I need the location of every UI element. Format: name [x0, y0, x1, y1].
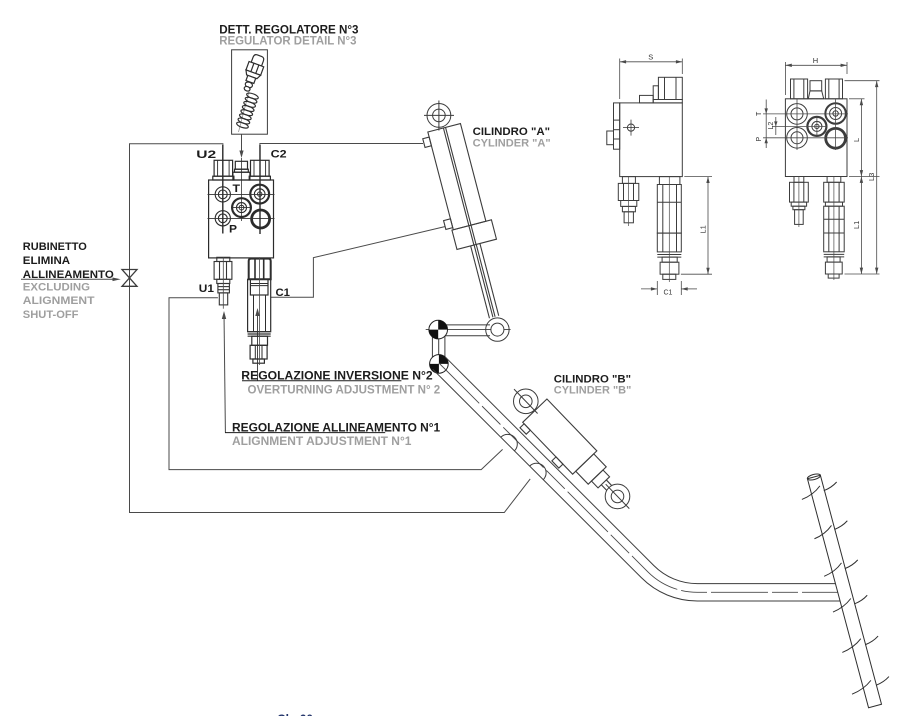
svg-text:H: H [813, 56, 818, 65]
svg-text:RUBINETTO: RUBINETTO [23, 241, 87, 253]
svg-text:L1: L1 [699, 225, 708, 233]
svg-text:CILINDRO "B": CILINDRO "B" [554, 373, 631, 385]
svg-text:Ch. 60: Ch. 60 [277, 712, 313, 716]
svg-text:U2: U2 [196, 149, 216, 161]
svg-text:OVERTURNING ADJUSTMENT N° 2: OVERTURNING ADJUSTMENT N° 2 [248, 382, 441, 396]
svg-text:SHUT-OFF: SHUT-OFF [23, 309, 79, 321]
svg-text:EXCLUDING: EXCLUDING [23, 281, 90, 293]
svg-text:L3: L3 [867, 173, 876, 181]
svg-text:L1: L1 [852, 221, 861, 229]
svg-text:T: T [233, 183, 241, 195]
svg-text:U1: U1 [199, 283, 214, 295]
svg-text:L2: L2 [768, 122, 775, 130]
svg-text:CYLINDER "B": CYLINDER "B" [554, 385, 632, 397]
svg-text:T: T [756, 111, 763, 116]
svg-text:CYLINDER "A": CYLINDER "A" [473, 137, 551, 149]
svg-text:S: S [648, 53, 653, 62]
svg-text:ELIMINA: ELIMINA [23, 255, 70, 267]
svg-text:ALLINEAMENTO: ALLINEAMENTO [23, 269, 114, 281]
svg-text:C1: C1 [276, 287, 291, 299]
svg-text:ALIGNMENT: ALIGNMENT [23, 295, 95, 307]
svg-text:L: L [852, 138, 861, 142]
svg-text:C2: C2 [271, 149, 287, 161]
svg-text:ALIGNMENT ADJUSTMENT N°1: ALIGNMENT ADJUSTMENT N°1 [232, 434, 411, 448]
svg-text:C1: C1 [664, 290, 673, 297]
svg-text:REGULATOR DETAIL N°3: REGULATOR DETAIL N°3 [219, 33, 357, 47]
svg-text:CILINDRO "A": CILINDRO "A" [473, 126, 550, 138]
svg-text:P: P [756, 137, 763, 142]
svg-text:P: P [229, 223, 237, 235]
